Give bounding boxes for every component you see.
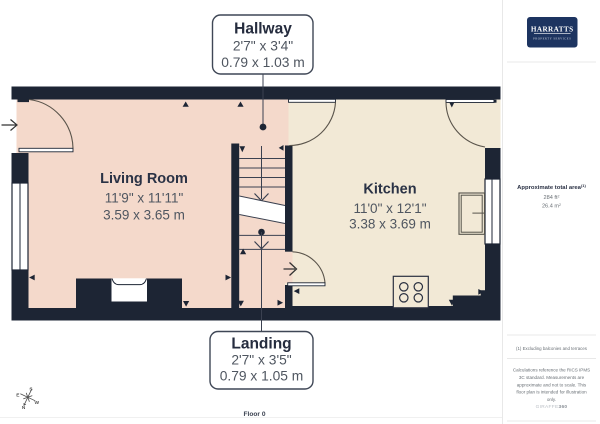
svg-text:W: W (35, 400, 40, 406)
svg-text:Landing: Landing (231, 336, 291, 353)
svg-text:(1) Excluding balconies and te: (1) Excluding balconies and terraces (516, 346, 588, 351)
svg-text:Approximate total area(1): Approximate total area(1) (517, 183, 586, 191)
svg-text:Living Room: Living Room (100, 171, 188, 187)
svg-text:26.4 m2: 26.4 m2 (542, 203, 561, 210)
svg-text:floor plan is intended for ill: floor plan is intended for illustration (516, 390, 587, 395)
svg-text:S: S (29, 386, 33, 392)
svg-text:3.38 x 3.69 m: 3.38 x 3.69 m (349, 216, 431, 231)
svg-text:only.: only. (547, 397, 556, 402)
svg-text:approximate and not to scale.: approximate and not to scale. This (517, 382, 587, 387)
svg-text:2'7" x 3'5": 2'7" x 3'5" (231, 353, 291, 368)
svg-text:3.59 x 3.65 m: 3.59 x 3.65 m (103, 208, 185, 223)
svg-text:HARRATTS: HARRATTS (531, 26, 574, 34)
svg-text:Calculations reference the RIC: Calculations reference the RICS IPMS (513, 368, 590, 373)
svg-text:284 ft2: 284 ft2 (544, 195, 560, 202)
svg-text:Kitchen: Kitchen (363, 181, 416, 197)
svg-text:11'0" x 12'1": 11'0" x 12'1" (353, 201, 426, 216)
svg-text:GIRAFFE360: GIRAFFE360 (536, 404, 568, 410)
svg-text:PROPERTY SERVICES: PROPERTY SERVICES (533, 37, 571, 41)
svg-text:Hallway: Hallway (234, 21, 292, 38)
svg-text:0.79 x 1.03 m: 0.79 x 1.03 m (221, 55, 305, 70)
svg-text:11'9" x 11'11": 11'9" x 11'11" (105, 191, 184, 206)
svg-text:E: E (16, 393, 20, 399)
svg-text:Floor 0: Floor 0 (244, 411, 266, 418)
svg-text:3C standard. Measurements are: 3C standard. Measurements are (519, 375, 585, 380)
svg-text:2'7" x 3'4": 2'7" x 3'4" (233, 39, 293, 54)
svg-text:N: N (22, 405, 26, 411)
svg-text:0.79 x 1.05 m: 0.79 x 1.05 m (220, 369, 304, 384)
